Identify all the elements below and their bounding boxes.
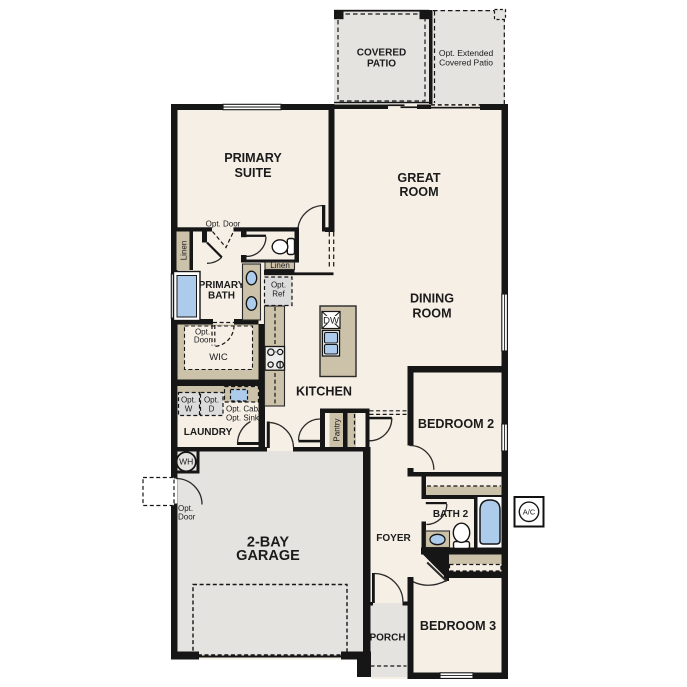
svg-text:BEDROOM 2: BEDROOM 2 xyxy=(418,417,494,431)
svg-text:GARAGE: GARAGE xyxy=(236,548,300,564)
svg-text:Linen: Linen xyxy=(180,241,189,261)
svg-text:Pantry: Pantry xyxy=(333,418,342,441)
svg-text:Ref: Ref xyxy=(272,290,285,299)
svg-text:LAUNDRY: LAUNDRY xyxy=(184,427,233,438)
svg-text:Door: Door xyxy=(178,513,196,522)
svg-text:GREAT: GREAT xyxy=(397,171,440,185)
svg-text:Opt. Extended: Opt. Extended xyxy=(439,48,494,58)
svg-text:ROOM: ROOM xyxy=(412,307,451,321)
svg-text:Door: Door xyxy=(194,336,212,345)
svg-text:FOYER: FOYER xyxy=(376,533,411,544)
svg-text:Opt.: Opt. xyxy=(204,396,219,405)
svg-text:Opt. Sink.: Opt. Sink. xyxy=(226,414,261,423)
svg-text:WH: WH xyxy=(179,457,193,467)
svg-text:SUITE: SUITE xyxy=(234,166,271,180)
svg-text:BEDROOM 3: BEDROOM 3 xyxy=(420,619,496,633)
svg-text:BATH: BATH xyxy=(208,291,235,302)
svg-text:A/C: A/C xyxy=(523,508,536,517)
svg-text:ROOM: ROOM xyxy=(399,185,438,199)
svg-text:DW: DW xyxy=(323,316,339,327)
svg-text:Linen: Linen xyxy=(270,261,290,270)
svg-text:PRIMARY: PRIMARY xyxy=(224,151,282,165)
svg-text:W: W xyxy=(185,405,193,414)
svg-text:BATH 2: BATH 2 xyxy=(433,509,469,520)
svg-text:PATIO: PATIO xyxy=(367,59,396,70)
svg-text:Opt. Door: Opt. Door xyxy=(206,219,241,228)
svg-text:Opt.: Opt. xyxy=(271,281,286,290)
svg-text:Opt.: Opt. xyxy=(181,396,196,405)
svg-text:PORCH: PORCH xyxy=(369,633,405,644)
svg-text:Covered Patio: Covered Patio xyxy=(439,58,493,68)
svg-text:WIC: WIC xyxy=(209,352,228,363)
svg-text:KITCHEN: KITCHEN xyxy=(296,385,352,399)
svg-text:D: D xyxy=(209,405,215,414)
svg-text:PRIMARY: PRIMARY xyxy=(199,280,245,291)
svg-text:DINING: DINING xyxy=(410,292,454,306)
svg-text:COVERED: COVERED xyxy=(357,48,406,59)
svg-text:Opt. Cab/: Opt. Cab/ xyxy=(226,405,261,414)
